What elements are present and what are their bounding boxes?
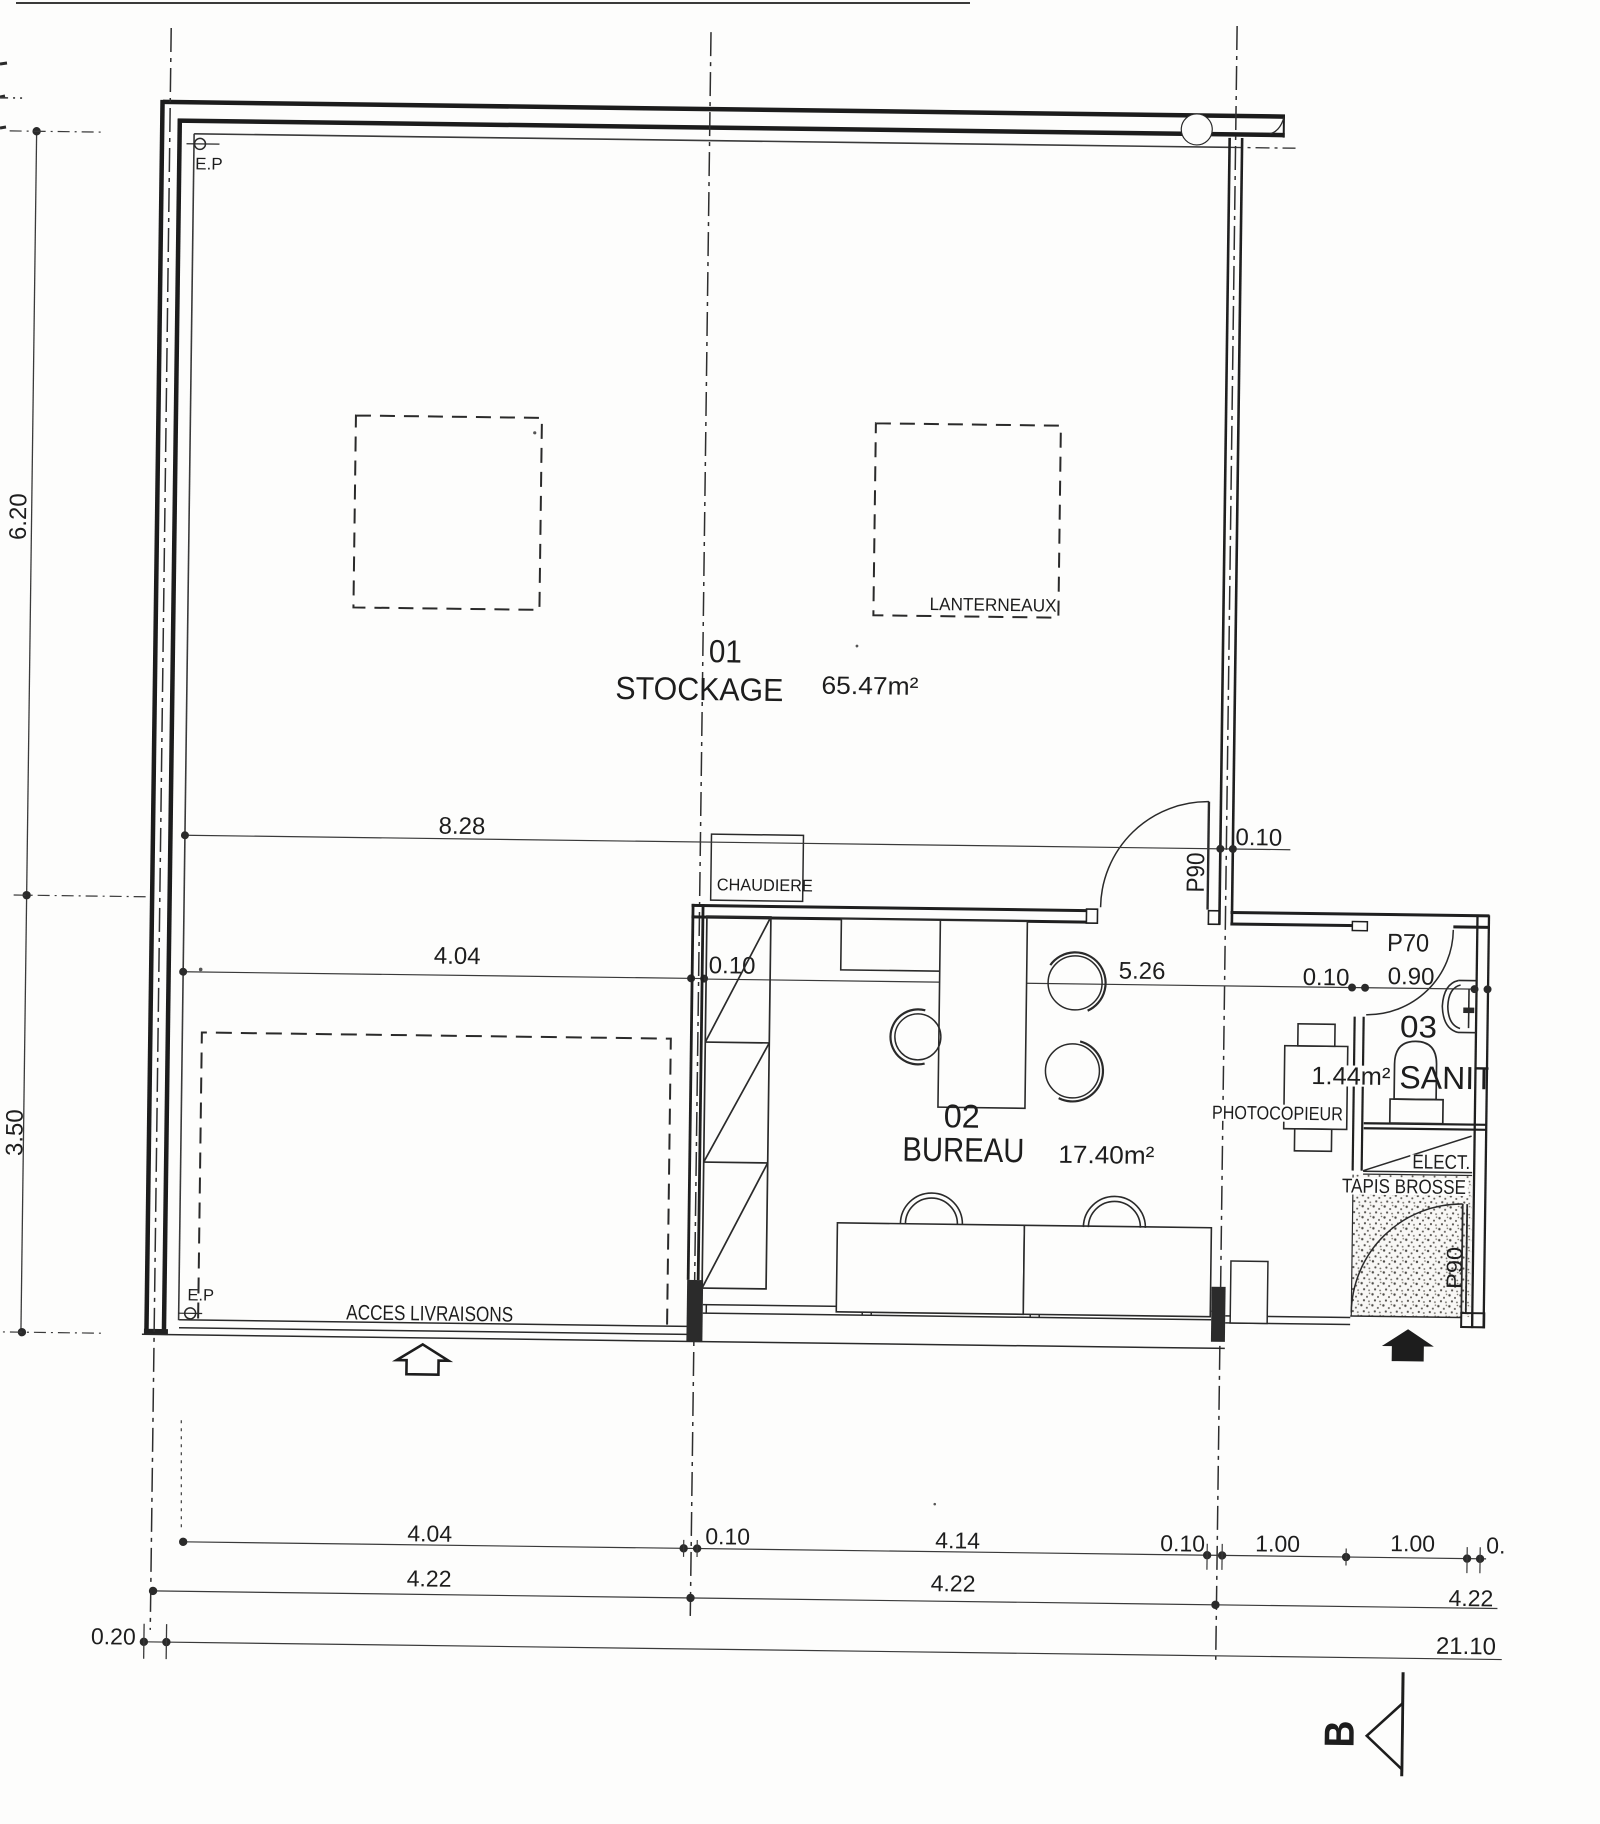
svg-text:STOCKAGE: STOCKAGE <box>615 670 783 708</box>
svg-text:0.10: 0.10 <box>1160 1530 1205 1557</box>
svg-text:0.20: 0.20 <box>91 1623 136 1650</box>
svg-text:3.50: 3.50 <box>1 1109 29 1156</box>
svg-text:ELECT.: ELECT. <box>1412 1151 1470 1174</box>
svg-text:0.90: 0.90 <box>1388 963 1435 991</box>
svg-text:CHAUDIERE: CHAUDIERE <box>717 875 813 895</box>
svg-text:ACCES LIVRAISONS: ACCES LIVRAISONS <box>346 1301 513 1326</box>
svg-text:1.44m²: 1.44m² <box>1311 1062 1390 1091</box>
svg-text:0.: 0. <box>1486 1532 1506 1558</box>
svg-text:65.47m²: 65.47m² <box>821 672 918 701</box>
svg-text:1.00: 1.00 <box>1255 1530 1300 1557</box>
svg-text:8.28: 8.28 <box>438 813 485 841</box>
svg-text:6.20: 6.20 <box>5 493 33 540</box>
svg-text:0.10: 0.10 <box>1303 964 1350 992</box>
svg-text:4.22: 4.22 <box>931 1570 976 1597</box>
svg-text:4.22: 4.22 <box>407 1565 452 1592</box>
svg-text:5.26: 5.26 <box>1119 957 1166 985</box>
svg-text:LANTERNEAUX: LANTERNEAUX <box>929 594 1056 616</box>
svg-text:B: B <box>1315 1720 1362 1748</box>
svg-text:4.22: 4.22 <box>1448 1585 1493 1612</box>
svg-text:E.P: E.P <box>187 1286 214 1304</box>
svg-text:21.10: 21.10 <box>1436 1633 1496 1661</box>
svg-text:4.04: 4.04 <box>434 943 481 971</box>
svg-text:P90: P90 <box>1442 1247 1468 1289</box>
svg-text:4.14: 4.14 <box>935 1527 980 1554</box>
svg-text:E.P: E.P <box>195 154 223 173</box>
svg-text:1.00: 1.00 <box>1390 1530 1435 1557</box>
svg-text:P70: P70 <box>1387 929 1429 958</box>
svg-text:4.04: 4.04 <box>407 1520 452 1547</box>
svg-text:0.10: 0.10 <box>705 1523 750 1550</box>
svg-text:02: 02 <box>944 1097 980 1134</box>
svg-text:01: 01 <box>709 633 742 669</box>
svg-text:BUREAU: BUREAU <box>902 1131 1024 1171</box>
svg-text:PHOTOCOPIEUR: PHOTOCOPIEUR <box>1212 1103 1343 1126</box>
svg-text:17.40m²: 17.40m² <box>1058 1141 1154 1170</box>
svg-text:03: 03 <box>1400 1009 1437 1044</box>
svg-text:0.10: 0.10 <box>709 952 756 980</box>
svg-text:0.10: 0.10 <box>1235 824 1282 852</box>
svg-text:P90: P90 <box>1182 852 1211 892</box>
svg-text:TAPIS BROSSE: TAPIS BROSSE <box>1342 1175 1466 1199</box>
